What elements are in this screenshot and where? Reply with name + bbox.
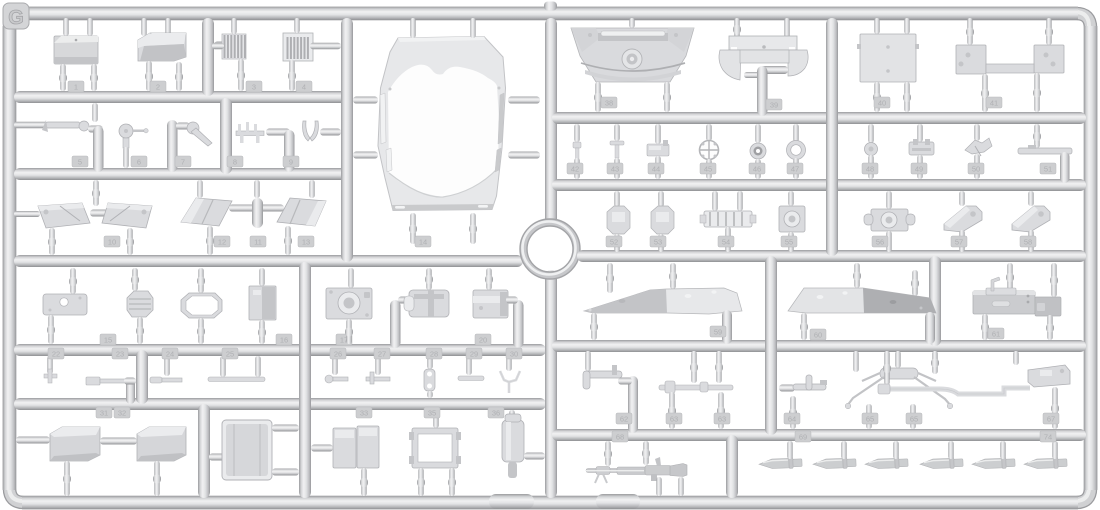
- svg-text:46: 46: [753, 165, 761, 174]
- svg-text:35: 35: [428, 409, 436, 418]
- svg-text:G: G: [8, 7, 24, 29]
- svg-text:67: 67: [1047, 415, 1055, 424]
- svg-text:32: 32: [118, 409, 126, 418]
- svg-text:69: 69: [799, 433, 807, 442]
- svg-text:24: 24: [166, 350, 174, 359]
- svg-text:45: 45: [704, 165, 712, 174]
- svg-text:3: 3: [252, 83, 256, 92]
- svg-text:12: 12: [218, 238, 226, 247]
- svg-text:13: 13: [302, 238, 310, 247]
- svg-text:52: 52: [610, 238, 618, 247]
- svg-text:74: 74: [1044, 433, 1052, 442]
- svg-text:58: 58: [1024, 238, 1032, 247]
- svg-text:30: 30: [510, 350, 518, 359]
- svg-text:40: 40: [878, 99, 886, 108]
- svg-text:43: 43: [611, 165, 619, 174]
- svg-text:1: 1: [74, 83, 78, 92]
- svg-text:53: 53: [654, 238, 662, 247]
- svg-text:51: 51: [1044, 165, 1052, 174]
- svg-text:63: 63: [670, 415, 678, 424]
- svg-text:56: 56: [876, 238, 884, 247]
- svg-text:9: 9: [289, 158, 293, 167]
- svg-text:65: 65: [866, 415, 874, 424]
- svg-text:22: 22: [52, 350, 60, 359]
- svg-text:54: 54: [722, 238, 730, 247]
- svg-text:41: 41: [990, 99, 998, 108]
- svg-text:44: 44: [652, 165, 660, 174]
- svg-text:42: 42: [571, 165, 579, 174]
- svg-text:68: 68: [616, 433, 624, 442]
- svg-text:23: 23: [116, 350, 124, 359]
- svg-text:36: 36: [492, 409, 500, 418]
- svg-text:25: 25: [226, 350, 234, 359]
- svg-text:50: 50: [972, 165, 980, 174]
- svg-text:7: 7: [181, 158, 185, 167]
- svg-text:27: 27: [378, 350, 386, 359]
- svg-text:8: 8: [233, 158, 237, 167]
- svg-text:15: 15: [104, 336, 112, 345]
- svg-text:63: 63: [718, 415, 726, 424]
- svg-text:6: 6: [137, 158, 141, 167]
- svg-text:11: 11: [254, 238, 262, 247]
- svg-text:47: 47: [791, 165, 799, 174]
- svg-text:14: 14: [419, 238, 427, 247]
- svg-text:62: 62: [620, 415, 628, 424]
- svg-text:38: 38: [605, 99, 613, 108]
- svg-text:10: 10: [108, 238, 116, 247]
- svg-text:16: 16: [280, 336, 288, 345]
- svg-text:2: 2: [156, 83, 160, 92]
- svg-text:60: 60: [814, 331, 822, 340]
- svg-text:26: 26: [334, 350, 342, 359]
- svg-text:29: 29: [470, 350, 478, 359]
- svg-text:33: 33: [360, 409, 368, 418]
- svg-text:61: 61: [992, 330, 1000, 339]
- svg-text:5: 5: [78, 158, 82, 167]
- svg-text:59: 59: [714, 328, 722, 337]
- svg-text:20: 20: [479, 336, 487, 345]
- svg-text:48: 48: [866, 165, 874, 174]
- svg-text:31: 31: [100, 409, 108, 418]
- svg-text:28: 28: [430, 350, 438, 359]
- svg-text:55: 55: [785, 238, 793, 247]
- svg-text:4: 4: [302, 83, 306, 92]
- svg-text:65: 65: [910, 415, 918, 424]
- svg-text:49: 49: [915, 165, 923, 174]
- svg-text:64: 64: [788, 415, 796, 424]
- svg-text:57: 57: [955, 238, 963, 247]
- svg-text:39: 39: [770, 101, 778, 110]
